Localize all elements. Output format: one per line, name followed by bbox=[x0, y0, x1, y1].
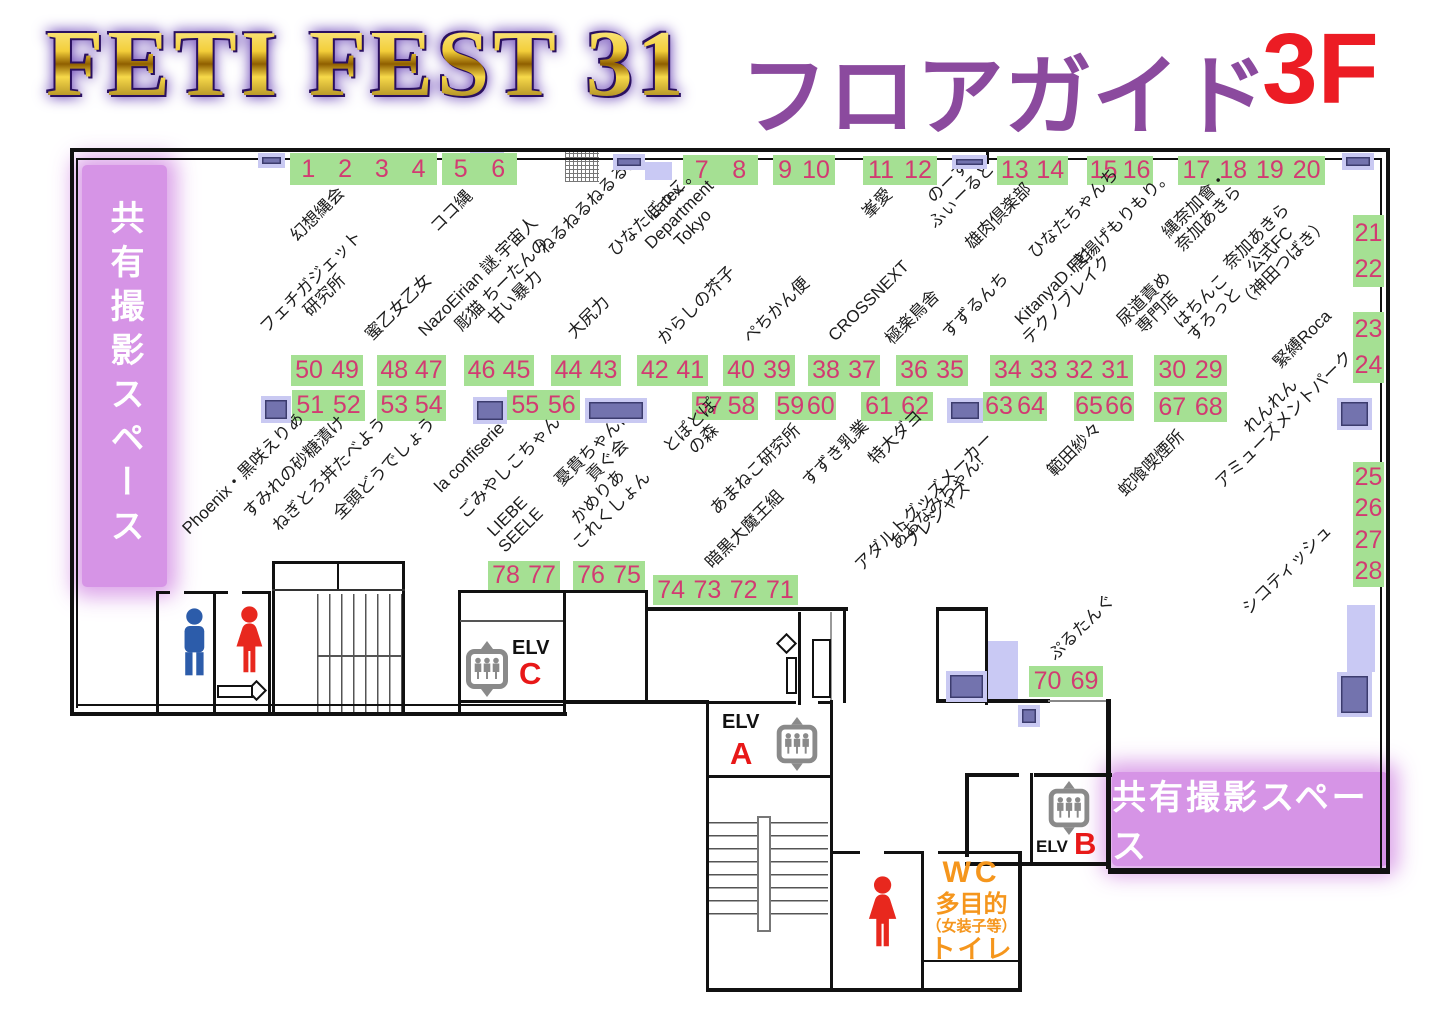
circle-label: ココ縄 bbox=[427, 186, 477, 236]
booth-number: 36 bbox=[900, 358, 928, 383]
booth-number: 67 bbox=[1158, 395, 1186, 420]
pillar bbox=[258, 153, 285, 168]
wall bbox=[460, 590, 648, 593]
circle-label: KitanyaD.Fとテクノブレイク bbox=[1005, 238, 1115, 348]
circle-label: からしの芥子 bbox=[654, 262, 740, 348]
wall bbox=[1034, 773, 1112, 777]
event-title: FETI FEST 31 bbox=[46, 10, 688, 118]
booth-number: 65 bbox=[1075, 394, 1103, 419]
elevator-label: ELV bbox=[722, 712, 759, 732]
wall bbox=[1030, 773, 1033, 866]
circle-label-line: からしの芥子 bbox=[654, 262, 740, 348]
booth-number: 78 bbox=[492, 563, 520, 588]
wall bbox=[645, 590, 648, 702]
female-toilet-icon bbox=[861, 876, 904, 953]
service-shaft bbox=[786, 657, 797, 694]
booth-block: 6768 bbox=[1154, 392, 1227, 422]
booth-number: 2 bbox=[338, 157, 352, 182]
stairs-top bbox=[317, 594, 402, 712]
shared-photo-area-right: 共有撮影スペース bbox=[1112, 772, 1388, 866]
circle-label-line: プレシャス bbox=[865, 442, 1011, 588]
wall bbox=[184, 591, 228, 594]
circle-label: 幻想縄会 bbox=[287, 183, 349, 245]
booth-number: 54 bbox=[415, 393, 443, 418]
stairs-rail bbox=[757, 816, 771, 932]
booth-block: 5152 bbox=[292, 390, 365, 421]
circle-label: 極楽鳥舎 bbox=[882, 286, 944, 348]
booth-number: 60 bbox=[807, 394, 835, 419]
booth-number: 61 bbox=[865, 394, 893, 419]
circle-label-line: すずるんち bbox=[939, 268, 1013, 342]
booth-number: 73 bbox=[693, 578, 721, 603]
circle-label-line: ぺちかん便 bbox=[740, 273, 814, 347]
wall bbox=[965, 773, 969, 857]
booth-block: 1314 bbox=[997, 156, 1068, 185]
booth-block: 4645 bbox=[464, 355, 534, 386]
booth-block: 2324 bbox=[1353, 312, 1384, 383]
wall bbox=[706, 988, 1022, 992]
booth-number: 4 bbox=[412, 157, 426, 182]
booth-number: 28 bbox=[1355, 559, 1383, 584]
wall bbox=[563, 590, 566, 702]
elevator-label: ELV bbox=[1036, 838, 1068, 855]
floor-number: 3F bbox=[1262, 12, 1379, 127]
wall bbox=[402, 561, 405, 714]
booth-block: 5556 bbox=[507, 390, 580, 420]
wall bbox=[70, 148, 1390, 152]
booth-block: 4039 bbox=[723, 355, 795, 386]
wall-line bbox=[1048, 700, 1106, 702]
booth-block: 17181920 bbox=[1178, 156, 1325, 185]
booth-number: 20 bbox=[1293, 158, 1321, 183]
booth-number: 42 bbox=[641, 358, 669, 383]
booth-number: 5 bbox=[454, 157, 468, 182]
booth-number: 53 bbox=[380, 393, 408, 418]
booth-number: 68 bbox=[1195, 395, 1223, 420]
elevator-letter: A bbox=[730, 738, 752, 769]
booth-number: 47 bbox=[415, 358, 443, 383]
booth-number: 24 bbox=[1355, 353, 1383, 378]
booth-number: 77 bbox=[528, 563, 556, 588]
pillar bbox=[1018, 705, 1040, 727]
booth-number: 55 bbox=[511, 393, 539, 418]
booth-block: 3635 bbox=[896, 355, 968, 386]
circle-label-line: すずき乳業 bbox=[799, 416, 873, 490]
female-toilet-icon bbox=[229, 606, 270, 679]
wall bbox=[818, 701, 832, 704]
booth-block: 7069 bbox=[1029, 666, 1103, 697]
guide-title: フロアガイド bbox=[740, 26, 1268, 153]
booth-number: 75 bbox=[613, 563, 641, 588]
circle-label-line: 峯愛 bbox=[859, 185, 896, 222]
booth-number: 39 bbox=[763, 358, 791, 383]
wall bbox=[798, 612, 801, 705]
booth-number: 27 bbox=[1355, 528, 1383, 553]
booth-number: 59 bbox=[776, 394, 804, 419]
wall bbox=[884, 851, 923, 854]
wall bbox=[965, 773, 1019, 777]
vent-grid bbox=[565, 150, 599, 182]
circle-label: すずき乳業 bbox=[799, 416, 873, 490]
booth-number: 1 bbox=[301, 157, 315, 182]
booth-number: 31 bbox=[1101, 358, 1129, 383]
wall bbox=[936, 610, 939, 703]
booth-number: 10 bbox=[802, 158, 830, 183]
booth-number: 41 bbox=[676, 358, 704, 383]
circle-label-line: ぷるたんぐ bbox=[1045, 590, 1119, 664]
service-shaft bbox=[812, 639, 831, 698]
pillar bbox=[947, 398, 983, 423]
booth-number: 13 bbox=[1001, 158, 1029, 183]
booth-number: 69 bbox=[1071, 669, 1099, 694]
booth-block: 910 bbox=[773, 155, 835, 185]
pillar bbox=[261, 396, 291, 423]
circle-label-line: 極楽鳥舎 bbox=[882, 286, 944, 348]
circle-label-line: 蛇喰喫煙所 bbox=[1115, 426, 1189, 500]
booth-number: 40 bbox=[727, 358, 755, 383]
elevator-label: ELV bbox=[512, 638, 549, 658]
pillar bbox=[1337, 398, 1372, 430]
booth-number: 45 bbox=[503, 358, 531, 383]
wall-line bbox=[460, 620, 563, 622]
booth-number: 38 bbox=[812, 358, 840, 383]
wall bbox=[70, 712, 567, 716]
booth-block: 1234 bbox=[290, 153, 437, 185]
booth-block: 7877 bbox=[488, 561, 560, 590]
circle-label: 範田紗々 bbox=[1044, 418, 1106, 480]
booth-number: 29 bbox=[1195, 358, 1223, 383]
wall bbox=[832, 851, 860, 854]
shared-photo-label: 共有撮影スペース bbox=[100, 200, 149, 552]
booth-number: 3 bbox=[375, 157, 389, 182]
elevator-letter: C bbox=[519, 658, 541, 689]
booth-number: 35 bbox=[936, 358, 964, 383]
booth-number: 49 bbox=[331, 358, 359, 383]
booth-number: 76 bbox=[577, 563, 605, 588]
circle-label: シコティッシュ bbox=[1239, 521, 1336, 618]
booth-block: 3837 bbox=[808, 355, 880, 386]
circle-label: フェチガジェット研究所 bbox=[256, 227, 379, 350]
booth-number: 51 bbox=[296, 393, 324, 418]
wall bbox=[938, 851, 1022, 854]
booth-block: 7675 bbox=[573, 561, 645, 590]
circle-label: 蛇喰喫煙所 bbox=[1115, 426, 1189, 500]
booth-number: 19 bbox=[1256, 158, 1284, 183]
wall bbox=[458, 590, 461, 716]
floor-marking bbox=[1347, 605, 1375, 672]
circle-label-line: シコティッシュ bbox=[1239, 521, 1336, 618]
booth-number: 48 bbox=[380, 358, 408, 383]
booth-number: 43 bbox=[590, 358, 618, 383]
booth-number: 74 bbox=[657, 578, 685, 603]
wall bbox=[337, 561, 339, 591]
booth-number: 72 bbox=[730, 578, 758, 603]
booth-number: 9 bbox=[778, 158, 792, 183]
shared-photo-label: 共有撮影スペース bbox=[1112, 770, 1388, 868]
circle-label: ぷるたんぐ bbox=[1045, 590, 1119, 664]
pillar bbox=[473, 397, 507, 424]
wall bbox=[242, 591, 270, 594]
wall bbox=[70, 148, 74, 716]
wall bbox=[563, 700, 708, 704]
door-symbol bbox=[776, 633, 797, 654]
booth-number: 64 bbox=[1017, 394, 1045, 419]
booth-number: 21 bbox=[1355, 221, 1383, 246]
booth-block: 5354 bbox=[377, 390, 446, 421]
elevator-icon bbox=[773, 716, 821, 777]
circle-label: ぺちかん便 bbox=[740, 273, 814, 347]
booth-block: 4241 bbox=[637, 355, 708, 386]
booth-number: 63 bbox=[985, 394, 1013, 419]
circle-label: すずるんち bbox=[939, 268, 1013, 342]
elevator-icon bbox=[465, 640, 509, 703]
male-toilet-icon bbox=[174, 608, 215, 681]
pillar bbox=[946, 671, 987, 702]
booth-number: 66 bbox=[1105, 394, 1133, 419]
wall bbox=[156, 591, 159, 714]
booth-number: 58 bbox=[728, 394, 756, 419]
booth-number: 44 bbox=[555, 358, 583, 383]
wall bbox=[272, 561, 275, 714]
booth-number: 50 bbox=[295, 358, 323, 383]
elevator-letter: B bbox=[1074, 828, 1096, 859]
booth-block: 25262728 bbox=[1353, 462, 1384, 587]
wall bbox=[830, 700, 833, 992]
booth-block: 4443 bbox=[551, 355, 621, 386]
booth-number: 30 bbox=[1158, 358, 1186, 383]
circle-label-line: ココ縄 bbox=[427, 186, 477, 236]
booth-block: 3029 bbox=[1154, 355, 1227, 386]
wall bbox=[645, 607, 848, 611]
booth-number: 14 bbox=[1036, 158, 1064, 183]
booth-number: 70 bbox=[1034, 669, 1062, 694]
circle-label-line: 大尻力 bbox=[564, 292, 614, 342]
booth-number: 37 bbox=[848, 358, 876, 383]
booth-number: 12 bbox=[904, 158, 932, 183]
wall bbox=[708, 701, 796, 704]
wall bbox=[936, 607, 988, 611]
booth-number: 26 bbox=[1355, 496, 1383, 521]
wc-multipurpose-label: WC 多目的 （女装子等） トイレ bbox=[923, 856, 1020, 965]
pillar bbox=[613, 154, 645, 170]
wall-line bbox=[76, 704, 565, 706]
booth-block: 4847 bbox=[377, 355, 446, 386]
wall bbox=[1106, 699, 1111, 869]
booth-number: 11 bbox=[868, 158, 894, 183]
floor-guide: FETI FEST 31 フロアガイド 3F 共有撮影スペース 共有撮影スペース… bbox=[0, 0, 1440, 1018]
booth-block: 5049 bbox=[291, 355, 363, 386]
booth-block: 2122 bbox=[1353, 215, 1384, 287]
booth-number: 46 bbox=[468, 358, 496, 383]
booth-number: 22 bbox=[1355, 257, 1383, 282]
circle-label: 尿道責め専門店 bbox=[1113, 268, 1188, 343]
wall bbox=[706, 700, 709, 992]
booth-block: 34333231 bbox=[990, 355, 1133, 386]
booth-number: 23 bbox=[1355, 317, 1383, 342]
booth-block: 5960 bbox=[775, 392, 836, 420]
booth-number: 32 bbox=[1065, 358, 1093, 383]
floor-marking bbox=[988, 641, 1018, 699]
pillar bbox=[952, 155, 987, 169]
circle-label: 大尻力 bbox=[564, 292, 614, 342]
wall bbox=[1386, 148, 1390, 874]
booth-block: 6364 bbox=[983, 392, 1047, 421]
booth-number: 33 bbox=[1030, 358, 1058, 383]
booth-block: 6566 bbox=[1074, 392, 1134, 421]
booth-number: 8 bbox=[732, 158, 746, 183]
wall bbox=[843, 610, 846, 703]
pillar bbox=[1337, 672, 1372, 717]
booth-number: 71 bbox=[766, 578, 794, 603]
shared-photo-area-left: 共有撮影スペース bbox=[82, 165, 167, 587]
pillar bbox=[1342, 153, 1374, 170]
wall-line bbox=[272, 589, 405, 591]
booth-block: 74737271 bbox=[653, 575, 798, 605]
circle-label-line: 幻想縄会 bbox=[287, 183, 349, 245]
wall-line bbox=[76, 158, 78, 708]
wall bbox=[1108, 868, 1390, 874]
service-shaft bbox=[217, 685, 253, 698]
circle-label: 峯愛 bbox=[859, 185, 896, 222]
booth-number: 6 bbox=[491, 157, 505, 182]
circle-label-line: 範田紗々 bbox=[1044, 418, 1106, 480]
booth-number: 25 bbox=[1355, 465, 1383, 490]
booth-block: 1112 bbox=[863, 156, 937, 185]
wall-line bbox=[317, 655, 402, 657]
booth-block: 56 bbox=[442, 153, 517, 185]
floor-marking bbox=[645, 162, 672, 180]
pillar bbox=[585, 398, 647, 423]
booth-number: 34 bbox=[994, 358, 1022, 383]
circle-label: LIEBESEELE bbox=[481, 490, 547, 556]
booth-number: 16 bbox=[1123, 158, 1151, 183]
